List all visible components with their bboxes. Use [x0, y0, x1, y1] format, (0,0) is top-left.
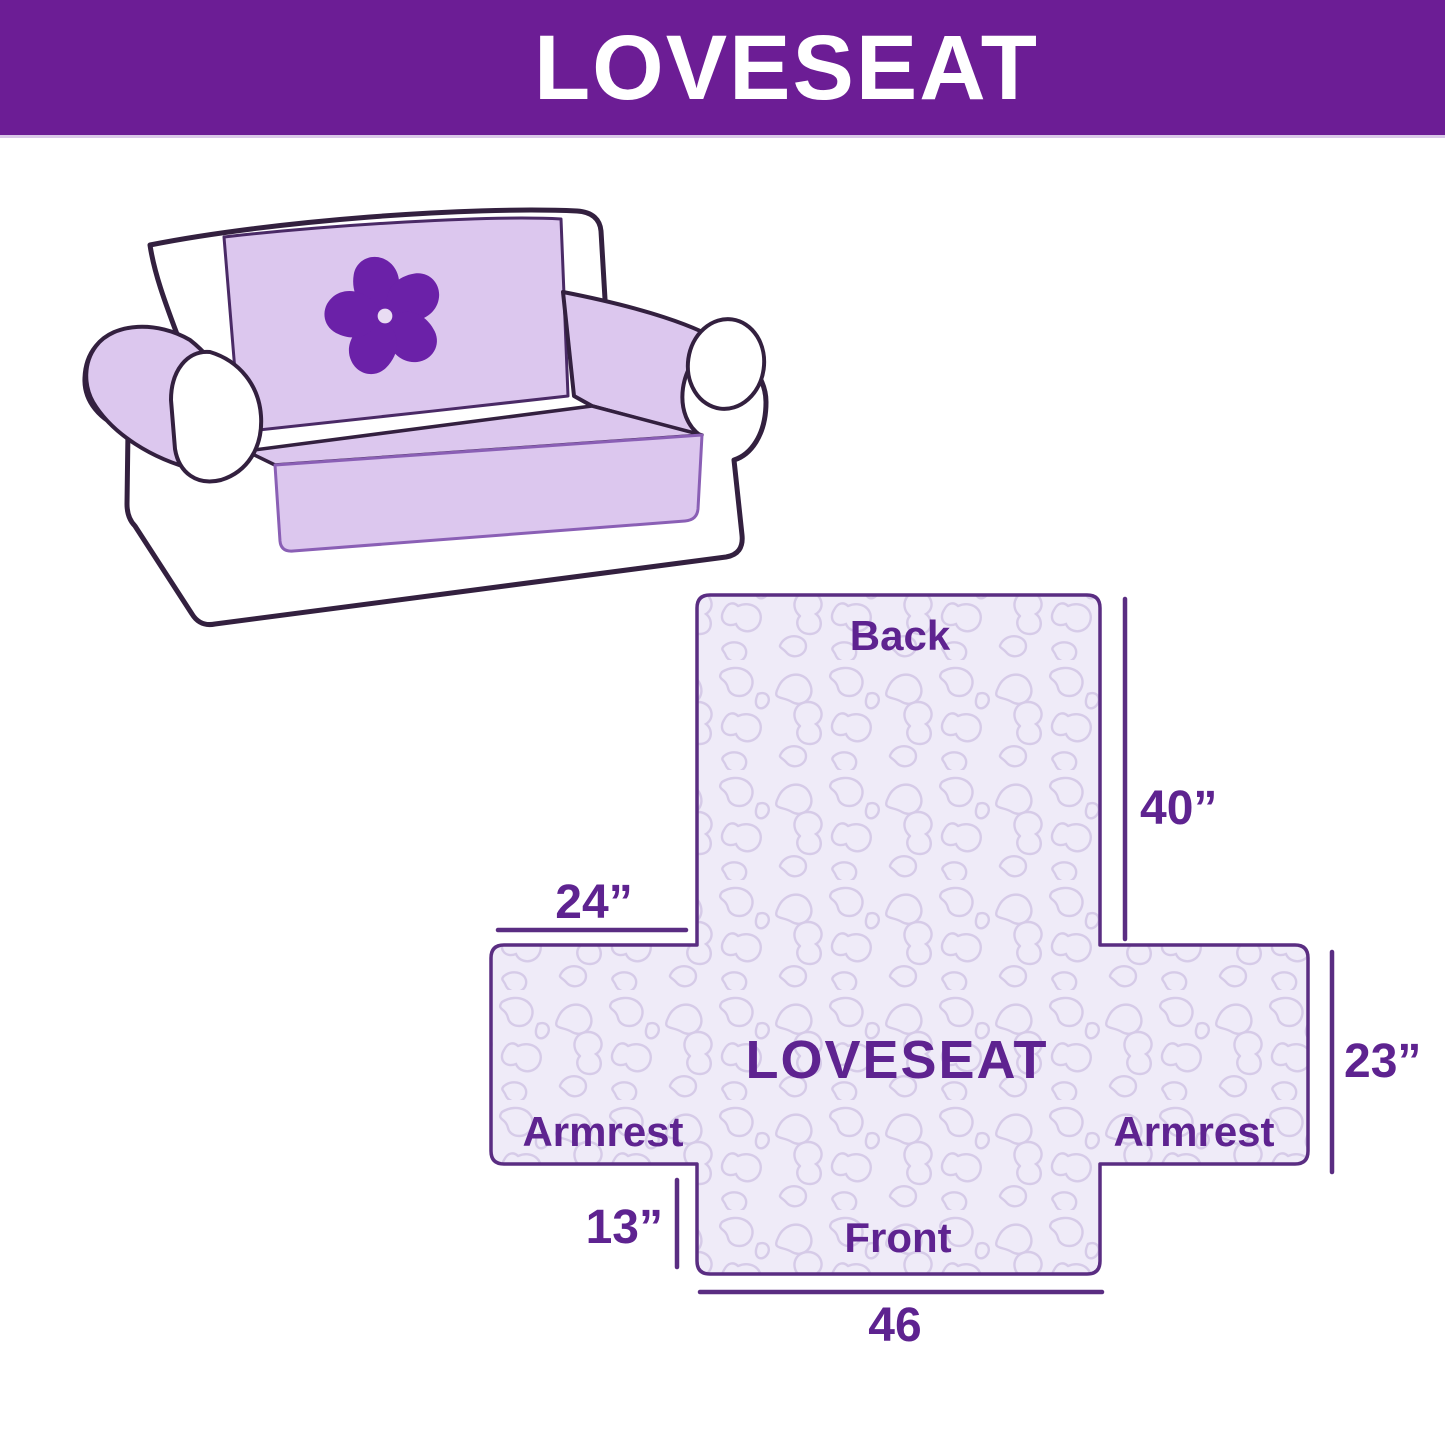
front-label: Front: [844, 1214, 951, 1261]
dim-side-height: 23”: [1344, 1035, 1421, 1088]
dim-front-drop: 13”: [586, 1201, 663, 1254]
back-label: Back: [850, 612, 951, 659]
cover-shape: [491, 595, 1308, 1274]
dim-back-width: 24”: [555, 876, 632, 929]
armrest-left-label: Armrest: [522, 1108, 683, 1155]
dim-front-width: 46: [868, 1299, 921, 1352]
page-title: LOVESEAT: [534, 22, 1039, 114]
cover-dimension-diagram: Back LOVESEAT Armrest Armrest Front 40” …: [440, 555, 1445, 1445]
page: LOVESEAT: [0, 0, 1445, 1445]
dim-back-height: 40”: [1140, 782, 1217, 835]
center-label: LOVESEAT: [745, 1030, 1048, 1090]
header-banner: LOVESEAT: [0, 0, 1445, 138]
armrest-right-label: Armrest: [1113, 1108, 1274, 1155]
